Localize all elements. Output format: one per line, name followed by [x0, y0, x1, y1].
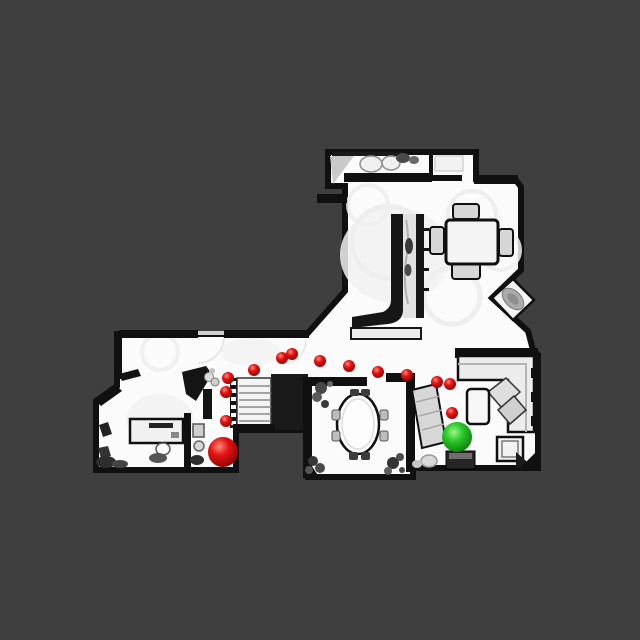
- waypoint-dot: [343, 360, 355, 372]
- map-viewport[interactable]: [0, 0, 640, 640]
- nook-bottom-wall: [429, 175, 462, 181]
- waypoint-dot: [444, 378, 456, 390]
- desk-item: [149, 423, 173, 428]
- stair-wall-block: [271, 374, 308, 430]
- dining-top-wall: [303, 377, 367, 386]
- dining-table: [337, 394, 379, 454]
- waypoint-dot: [222, 372, 234, 384]
- topdown-floor-map: [0, 0, 640, 640]
- hall-top-wall-left: [119, 330, 198, 338]
- kitchen-item-2: [409, 156, 419, 164]
- waypoint-dot: [372, 366, 384, 378]
- kitchen-sink: [360, 156, 382, 172]
- top-right-wall: [474, 175, 518, 184]
- waypoint-dot: [314, 355, 326, 367]
- table: [446, 220, 498, 264]
- desk: [130, 419, 183, 443]
- stair-bottom-wall: [233, 424, 275, 432]
- fixture-2: [194, 441, 204, 451]
- island-wall-right: [416, 214, 424, 318]
- kitchen-item: [396, 153, 410, 163]
- waypoint-dot: [220, 386, 232, 398]
- alcove-left-wall: [203, 389, 212, 419]
- office-shadow: [149, 453, 167, 463]
- chair: [499, 229, 513, 256]
- hall-left-wall: [114, 333, 122, 379]
- goal-marker: [442, 422, 472, 452]
- chair: [430, 227, 444, 254]
- waypoint-dot: [431, 376, 443, 388]
- wall-stub: [317, 194, 347, 203]
- waypoint-dot: [220, 415, 232, 427]
- waypoint-dot: [248, 364, 260, 376]
- chair: [453, 204, 479, 219]
- staircase: [230, 374, 308, 432]
- kitchen-top-wall: [332, 152, 404, 156]
- start-marker: [208, 437, 238, 467]
- fixture: [193, 424, 204, 437]
- hall-top-wall-right: [224, 330, 309, 338]
- stair-treads: [237, 378, 271, 426]
- coffee-table: [467, 389, 489, 424]
- nook-counter: [435, 156, 463, 171]
- waypoint-dot: [401, 369, 413, 381]
- kitchen-bottom-wall: [344, 173, 432, 182]
- waypoint-dot: [446, 407, 458, 419]
- living-left-wall: [406, 373, 415, 472]
- window-sill: [198, 331, 224, 335]
- office-right-wall: [184, 413, 191, 470]
- floor-cushion: [421, 455, 437, 467]
- nook-left-wall: [429, 152, 433, 178]
- desk-item-2: [171, 432, 179, 438]
- bench: [351, 328, 421, 339]
- waypoint-dot: [286, 348, 298, 360]
